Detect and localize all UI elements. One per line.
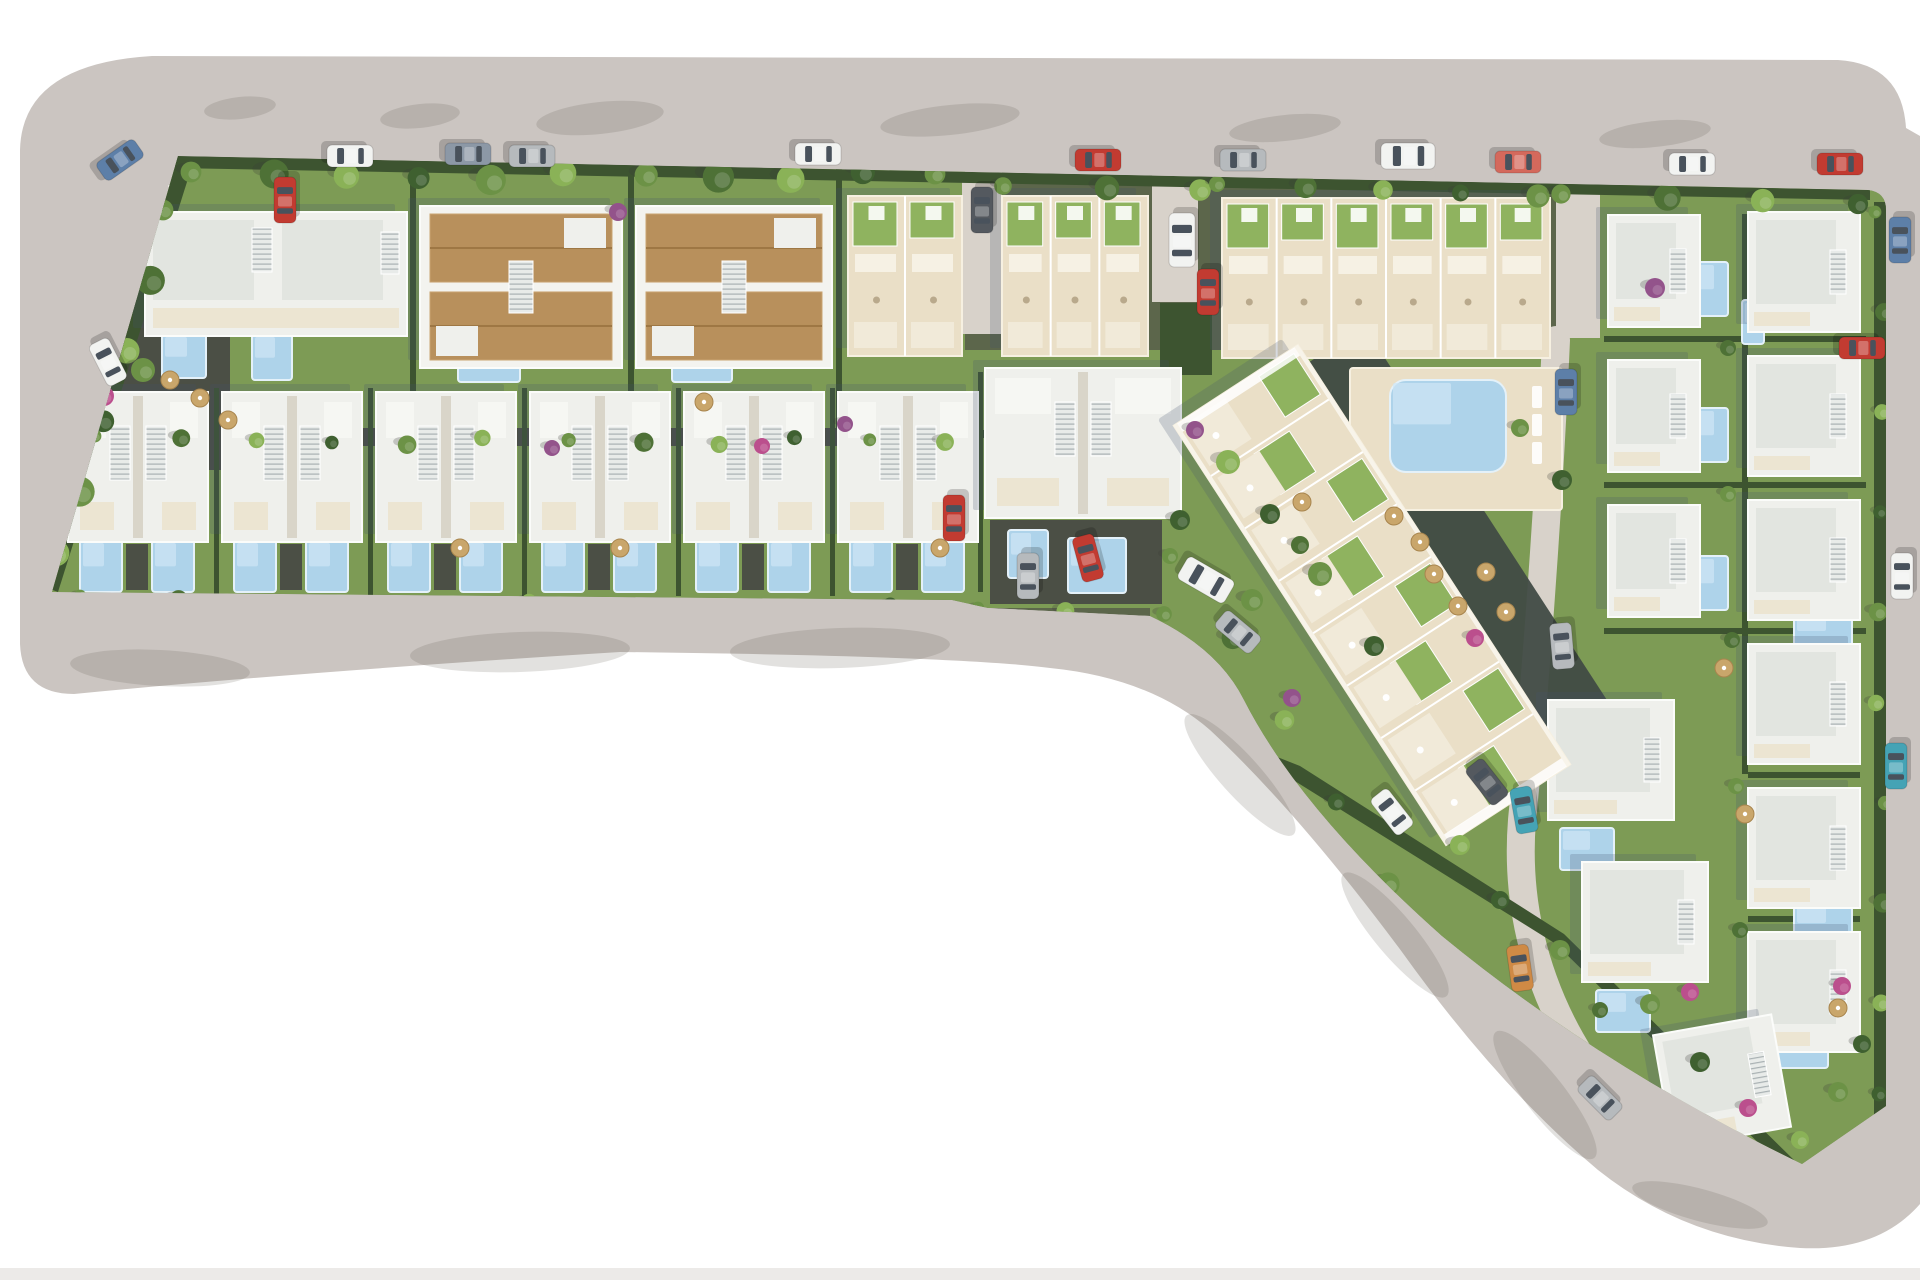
canopy [1502,256,1541,274]
roof-panel [652,326,694,356]
windshield [946,505,962,512]
car [1885,737,1911,789]
tree-highlight [255,438,263,446]
roof-panel [1590,870,1684,954]
parasol-pole [1743,812,1747,816]
parasol-pole [618,546,622,550]
pergola [869,206,885,220]
pool-highlight [165,337,187,357]
windshield [337,148,344,164]
car-roof [1173,236,1191,248]
parasol-pole [1722,666,1726,670]
terrace [1392,324,1433,350]
windshield [519,148,526,164]
rear-window [1251,152,1257,168]
site-plan-svg [0,0,1920,1280]
villa-lot [1736,492,1860,620]
tree-highlight [1518,425,1527,434]
roof-panel [324,402,352,438]
terrace [696,502,730,530]
parasol-pole [198,396,202,400]
car-roof [528,149,538,163]
tree-highlight [641,439,651,449]
parasol-pole [168,378,172,382]
windshield [1894,563,1910,570]
canopy [1338,256,1377,274]
windshield [1200,279,1216,286]
stairwell [110,426,130,480]
roof-panel [1756,796,1836,880]
tree-highlight [1558,947,1568,957]
tree-highlight [643,172,655,184]
van [1169,207,1199,267]
parasol-pole [702,400,706,404]
tree-highlight [405,442,414,451]
stairwell [418,426,438,480]
roof-panel [1756,508,1836,592]
tree-highlight [1372,643,1382,653]
roof-panel [632,402,660,438]
tree-highlight [188,169,198,179]
parasol-pole [1456,604,1460,608]
patio-furniture [1410,299,1417,306]
tree-highlight [1560,477,1570,487]
tree-highlight [860,168,872,180]
terrace [1614,597,1660,611]
rear-window [1892,248,1908,254]
party-gap [133,396,143,538]
car [321,141,373,167]
tree-highlight [1458,842,1468,852]
hedge [1748,772,1860,778]
patio-furniture [1465,299,1472,306]
tree-highlight [1498,897,1507,906]
roof-panel [436,326,478,356]
garden-path [126,544,148,590]
garden-path [280,544,302,590]
villa-lot [1570,854,1708,982]
car [1891,547,1917,599]
canopy [1058,254,1091,272]
stairwell [252,228,272,272]
villa-lot [1596,352,1700,472]
terrace [1057,322,1092,348]
roof-panel [1756,940,1836,1024]
terrace [1754,888,1810,902]
terrace [542,502,576,530]
hedge [1604,336,1866,342]
windshield [1230,152,1237,168]
stairwell [1644,738,1660,782]
villa-lot [1596,497,1700,617]
parasol-pole [938,546,942,550]
unit-divider [1330,198,1332,358]
tree-highlight [179,436,188,445]
pool-highlight [309,543,330,566]
stairwell [726,426,746,480]
stairwell [381,232,399,274]
garden-path [588,544,610,590]
pool-highlight [391,543,412,566]
villa-lot [1596,207,1700,327]
tree-highlight [480,435,488,443]
tree-highlight [1688,989,1697,998]
car [1833,333,1885,359]
pool-highlight [1563,831,1590,850]
windshield [1393,146,1401,166]
terrace [1554,800,1617,814]
stairwell [1830,250,1846,294]
terrace [1754,744,1810,758]
terrace [1447,324,1488,350]
terrace [80,502,114,530]
car [274,171,300,223]
parasol-pole [1392,514,1396,518]
car [1197,263,1223,315]
tree-highlight [567,438,574,445]
tree-highlight [1698,1059,1708,1069]
unit-divider [904,196,906,356]
terrace [1588,962,1651,976]
hedge [1604,482,1866,488]
tree-highlight [1855,201,1865,211]
car [1214,145,1266,171]
tree-highlight [1730,638,1738,646]
patio-furniture [1023,297,1030,304]
pergola [1405,208,1421,222]
rear-window [1700,156,1706,172]
pool-highlight [853,543,874,566]
rear-window [358,148,364,164]
car [1549,616,1579,670]
stairwell [1670,539,1686,583]
tree-highlight [1836,1089,1846,1099]
car-roof [947,514,961,524]
unit-divider [1440,198,1442,358]
tree-highlight [1298,542,1307,551]
pergola [1515,208,1531,222]
stairwell [264,426,284,480]
car-roof [1688,157,1698,171]
windshield [1849,340,1856,356]
windshield [1892,227,1908,234]
terrace [624,502,658,530]
pool-highlight [699,543,720,566]
tree-highlight [1840,983,1849,992]
tree-highlight [1303,184,1314,195]
rear-window [1418,146,1424,166]
tree-highlight [550,446,558,454]
tree-highlight [868,438,874,444]
roof-panel [386,402,414,438]
rear-window [1894,584,1910,590]
stairwell [300,426,320,480]
terrace [1105,322,1140,348]
pergola [1116,206,1132,220]
rear-window [1172,250,1192,256]
terrace [1107,478,1169,506]
stairwell [1055,402,1075,456]
tree-highlight [1664,193,1677,206]
rear-window [1200,300,1216,306]
tree-highlight [1317,570,1329,582]
terrace [234,502,268,530]
car-roof [975,206,989,216]
car [1889,211,1915,263]
patio-furniture [1072,297,1079,304]
stairwell [1670,249,1686,293]
parasol-pole [1836,1006,1840,1010]
windshield [1827,156,1834,172]
rear-window [540,148,546,164]
car-roof [1895,572,1909,582]
car [1017,547,1043,599]
canopy [1448,256,1487,274]
tree-highlight [1334,799,1342,807]
party-gap [1078,372,1088,514]
windshield [974,197,990,204]
villa-lot [1736,348,1860,476]
stairwell [722,261,746,313]
tree-highlight [1001,183,1010,192]
windshield [1888,753,1904,760]
party-gap [287,396,297,538]
rear-window [826,146,832,162]
tree-highlight [1877,1092,1884,1099]
tree-highlight [717,442,726,451]
terrace [1754,600,1810,614]
roof-panel [1616,368,1676,444]
car [1811,149,1863,175]
windshield [1505,154,1512,170]
car [1069,145,1121,171]
windshield [1085,152,1092,168]
roof-panel [774,218,816,248]
terrace [1283,324,1324,350]
party-gap [903,396,913,538]
patio-furniture [1246,299,1253,306]
roof-panel [940,402,968,438]
pool-highlight [237,543,258,566]
terrace [1228,324,1269,350]
canopy [1284,256,1323,274]
rear-window [1888,774,1904,780]
site-plan-render [0,0,1920,1280]
tree-highlight [1878,510,1885,517]
tree-highlight [1648,1001,1658,1011]
tree-highlight [1598,1008,1606,1016]
windshield [1553,632,1570,640]
tree-highlight [787,175,801,189]
party-gap [595,396,605,538]
pergola [926,206,942,220]
stairwell [916,426,936,480]
windshield [805,146,812,162]
tree-highlight [1197,187,1208,198]
tree-highlight [416,175,427,186]
tree-highlight [1726,492,1734,500]
rear-window [1558,400,1574,406]
van [1375,139,1435,169]
windshield [1679,156,1686,172]
garden-path [742,544,764,590]
tree-highlight [793,435,800,442]
roof-panel [282,220,383,300]
car-roof [1559,388,1573,398]
terrace [997,478,1059,506]
car [789,139,841,165]
tree-highlight [1860,1041,1869,1050]
pergola [1067,206,1083,220]
villa-lot [1736,780,1860,908]
tree-highlight [714,172,730,188]
tree-highlight [100,418,111,429]
terrace [1754,456,1810,470]
patio-furniture [1519,299,1526,306]
pool-highlight [1393,383,1451,424]
stairwell [880,426,900,480]
tree-highlight [1168,554,1176,562]
roof-panel [1556,708,1650,792]
car-roof [1893,236,1907,246]
stairwell [1678,900,1694,944]
rear-window [946,526,962,532]
canopy [1393,256,1432,274]
car [1555,363,1581,415]
car-roof [814,147,824,161]
tree-highlight [1381,187,1391,197]
roof-panel [848,402,876,438]
roof-panel [995,378,1051,414]
terrace [153,308,399,328]
car-roof [278,196,292,206]
site-plan [0,0,1920,1280]
pergola [1018,206,1034,220]
stairwell [1091,402,1111,456]
roof-panel [1756,220,1836,304]
unit-divider [1385,198,1387,358]
windshield [1020,563,1036,570]
car-roof [1858,341,1868,355]
parasol-pole [1418,540,1422,544]
villa-lot [1736,204,1860,332]
party-gap [749,396,759,538]
unit-divider [1098,196,1100,356]
patio-furniture [873,297,880,304]
canopy [855,254,896,272]
car [503,141,555,167]
tree-highlight [1738,928,1746,936]
pool-highlight [545,543,566,566]
lounger [1532,414,1542,436]
tree-highlight [1473,635,1482,644]
windshield [1172,225,1192,233]
villa-lot [1736,636,1860,764]
pool-highlight [155,543,176,566]
tree-highlight [1104,184,1116,196]
tree-highlight [1458,190,1466,198]
patio-furniture [1355,299,1362,306]
tree-highlight [147,276,161,290]
pool-highlight [83,543,104,566]
tree-highlight [124,347,137,360]
unit-divider [1494,198,1496,358]
car-roof [1094,153,1104,167]
terrace [1337,324,1378,350]
rear-window [1020,584,1036,590]
rear-window [476,146,482,162]
tree-highlight [1249,597,1260,608]
stairwell [1830,394,1846,438]
tree-highlight [932,171,942,181]
stairwell [1670,394,1686,438]
terrace [778,502,812,530]
roof-panel [153,220,254,300]
tree-highlight [943,439,952,448]
terrace [316,502,350,530]
rear-window [974,218,990,224]
unit-divider [1050,196,1052,356]
stairwell [509,261,533,313]
terrace [162,502,196,530]
tree-highlight [1876,609,1885,618]
car-roof [1836,157,1846,171]
parking-lane [1556,190,1600,338]
car [1489,147,1541,173]
roof-panel [1115,378,1171,414]
parasol-pole [458,546,462,550]
tree-highlight [1559,191,1569,201]
stairwell [1830,826,1846,870]
tree-highlight [843,422,851,430]
tree-highlight [140,366,152,378]
car-roof [1404,147,1416,165]
car-roof [1889,762,1903,772]
parasol-pole [1432,572,1436,576]
parasol-pole [1504,610,1508,614]
tree-highlight [1193,427,1202,436]
car-roof [346,149,356,163]
tree-highlight [343,172,356,185]
canopy [1106,254,1139,272]
stairwell [1830,538,1846,582]
rear-window [1848,156,1854,172]
canopy [1229,256,1268,274]
tree-highlight [1178,517,1188,527]
tree-highlight [1760,197,1772,209]
terrace [388,502,422,530]
car [971,181,997,233]
roof-panel [1756,652,1836,736]
terrace [1614,307,1660,321]
terrace [850,502,884,530]
tree-highlight [1726,346,1734,354]
rear-window [1870,340,1876,356]
stairwell [572,426,592,480]
parasol-pole [226,418,230,422]
tree-highlight [1215,182,1223,190]
tree-highlight [1874,701,1882,709]
curb-strip [0,1268,1920,1280]
terrace [1614,452,1660,466]
tree-highlight [760,444,768,452]
windshield [455,146,462,162]
pool-highlight [771,543,792,566]
patio-furniture [1301,299,1308,306]
windshield [277,187,293,194]
pergola [1296,208,1312,222]
terrace [911,322,954,348]
